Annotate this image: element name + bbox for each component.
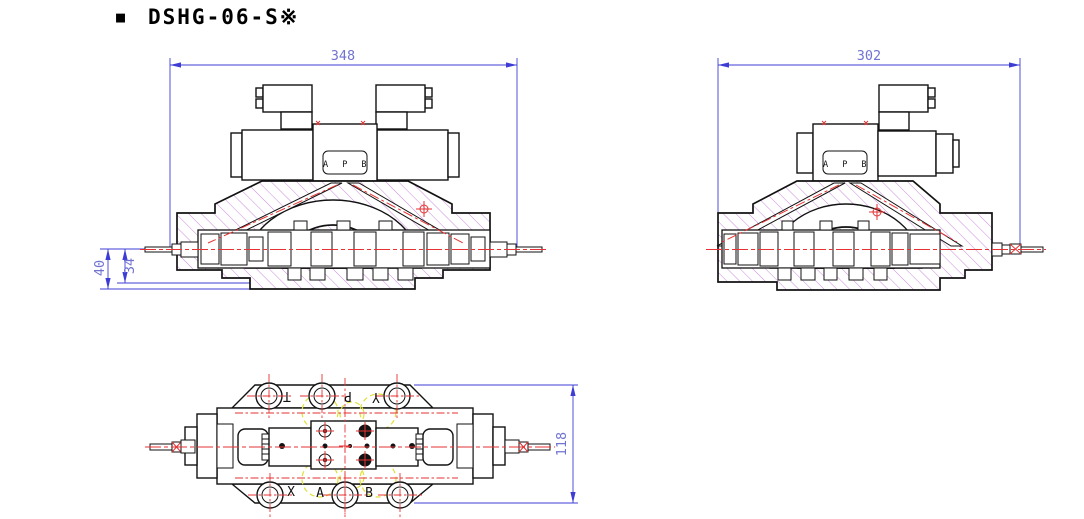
solenoid-right <box>377 130 459 180</box>
front-view-double-solenoid: 348 40 34 <box>92 48 546 289</box>
dim-text-302: 302 <box>857 48 881 64</box>
port-letter-a: A <box>316 486 324 501</box>
port-letter-b: B <box>365 486 373 501</box>
din-connector-right <box>376 85 432 129</box>
din-connector-left <box>256 85 312 129</box>
port-letter-p: P <box>344 388 352 403</box>
title-bullet-icon: ■ <box>116 8 125 26</box>
dim-text-348: 348 <box>331 48 355 64</box>
page-title: DSHG-06-S※ <box>148 5 299 29</box>
pilot-valve-assembly: A P B <box>797 121 959 181</box>
front-view-single-solenoid: 302 A P B <box>706 48 1046 290</box>
title-block: ■ DSHG-06-S※ <box>116 5 299 29</box>
port-letter-t: T <box>283 388 291 403</box>
port-letter-y: Y <box>372 389 380 404</box>
port-label-apb-single: A P B <box>823 160 871 170</box>
din-connector-single <box>879 85 935 130</box>
port-label-apb: A P B <box>323 160 371 170</box>
valve-technical-drawing: ■ DSHG-06-S※ 348 40 34 <box>0 0 1084 519</box>
dim-text-118: 118 <box>554 432 570 456</box>
pilot-valve-body: A P B <box>313 121 377 181</box>
port-letter-x: X <box>287 485 295 500</box>
top-view: T P Y X A B 118 <box>145 374 578 519</box>
solenoid-left <box>231 130 313 180</box>
dim-text-34: 34 <box>122 258 138 274</box>
solenoid-single <box>878 131 936 176</box>
dim-text-40: 40 <box>92 260 108 276</box>
